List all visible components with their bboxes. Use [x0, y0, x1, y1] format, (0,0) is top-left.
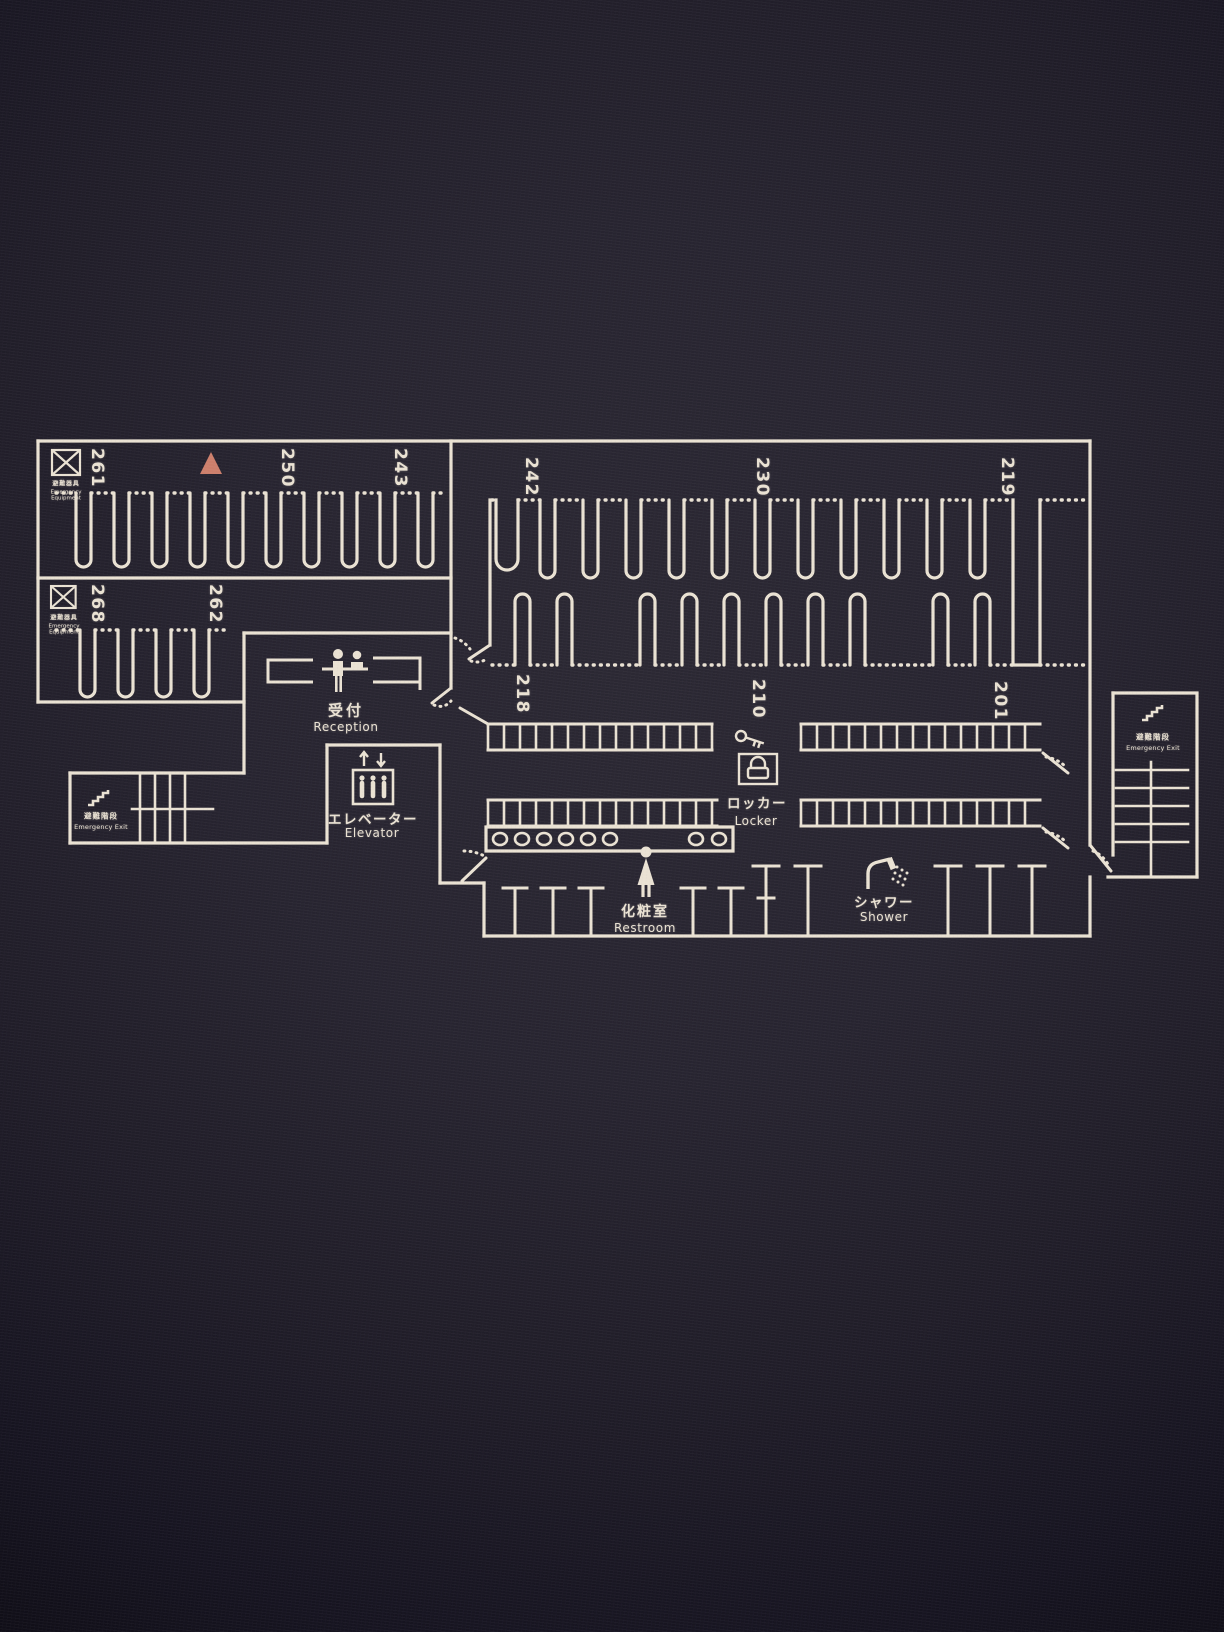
label-layer: 261 250 243 242 230 219 268 262 218 210 … — [0, 0, 1224, 1632]
capsule-number-label: 268 — [87, 584, 107, 624]
emergency-equipment-label-jp: 避難器具 — [50, 613, 77, 622]
reception-label-jp: 受付 — [328, 700, 364, 721]
locker-label-en: Locker — [735, 814, 778, 828]
emergency-exit-label-en: Emergency Exit — [74, 823, 128, 831]
shower-label-jp: シャワー — [854, 891, 914, 911]
locker-label-jp: ロッカー — [727, 792, 787, 812]
emergency-exit-label-en: Emergency Exit — [1126, 744, 1180, 752]
capsule-number-label: 243 — [390, 448, 410, 488]
capsule-number-label: 201 — [990, 681, 1010, 721]
floor-map-sign-photo: 261 250 243 242 230 219 268 262 218 210 … — [0, 0, 1224, 1632]
restroom-label-en: Restroom — [614, 921, 676, 935]
capsule-number-label: 230 — [752, 457, 772, 497]
capsule-number-label: 218 — [512, 674, 532, 714]
emergency-equipment-label-jp: 避難器具 — [52, 479, 79, 488]
capsule-number-label: 262 — [205, 584, 225, 624]
capsule-number-label: 210 — [748, 679, 768, 719]
emergency-equipment-label-en: Emergency Equipment — [41, 624, 87, 637]
capsule-number-label: 219 — [997, 457, 1017, 497]
shower-label-en: Shower — [860, 910, 908, 924]
restroom-label-jp: 化粧室 — [621, 901, 669, 921]
capsule-number-label: 242 — [521, 457, 541, 497]
capsule-number-label: 261 — [87, 448, 107, 488]
reception-label-en: Reception — [313, 720, 378, 734]
emergency-exit-label-jp: 避難階段 — [84, 811, 118, 822]
elevator-label-jp: エレベーター — [328, 808, 418, 828]
emergency-exit-label-jp: 避難階段 — [1136, 732, 1170, 743]
elevator-label-en: Elevator — [345, 826, 400, 840]
emergency-equipment-label-en: Emergency Equipment — [43, 490, 89, 503]
capsule-number-label: 250 — [277, 448, 297, 488]
